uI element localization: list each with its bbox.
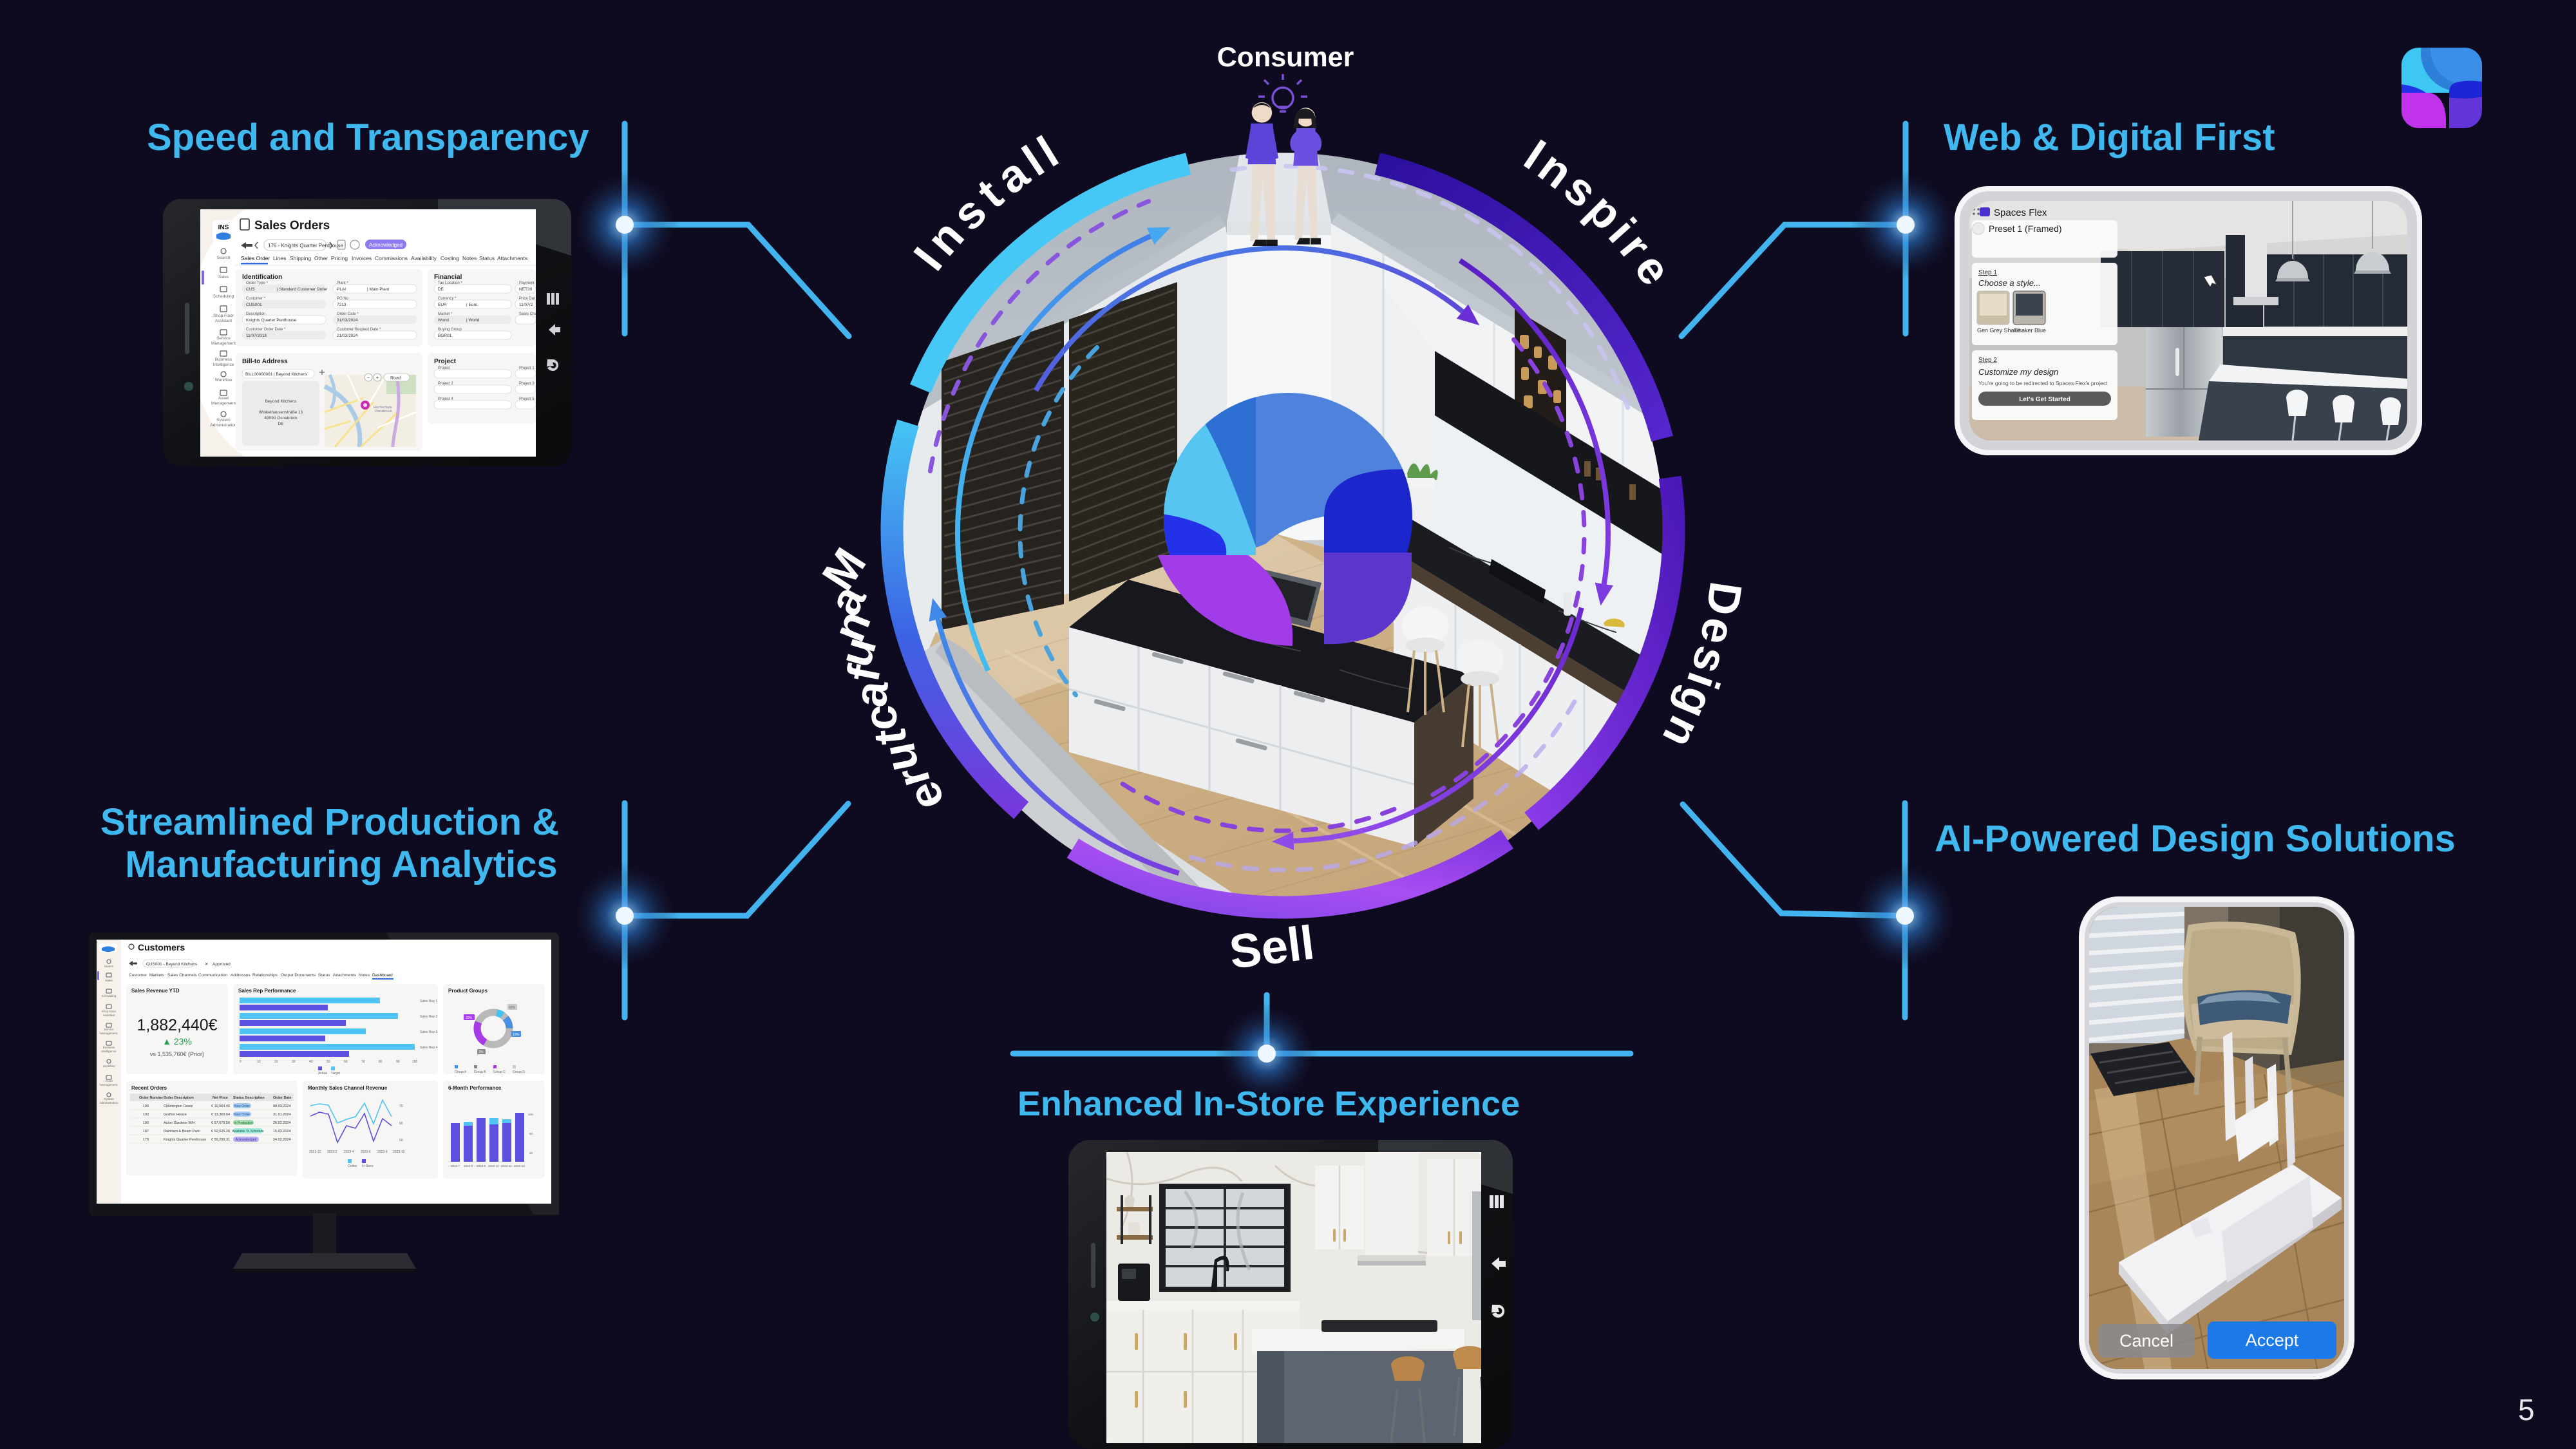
svg-text:Web & Digital First: Web & Digital First (1944, 117, 2275, 158)
svg-text:CUS001: CUS001 (246, 303, 262, 307)
svg-text:System: System (104, 1097, 113, 1101)
svg-text:€ 10,564.46: € 10,564.46 (211, 1104, 230, 1108)
svg-text:INS: INS (218, 224, 229, 231)
svg-text:Other: Other (314, 255, 328, 261)
svg-text:Sales Orders: Sales Orders (254, 219, 330, 232)
svg-text:Shop Floor: Shop Floor (102, 1010, 117, 1013)
svg-text:Plant *: Plant * (337, 281, 348, 285)
svg-text:Assistant: Assistant (103, 1014, 115, 1017)
svg-text:In-Store: In-Store (362, 1164, 374, 1168)
svg-text:Financial: Financial (434, 274, 462, 281)
svg-text:21/03/2024: 21/03/2024 (337, 334, 358, 338)
svg-text:Scheduling: Scheduling (102, 994, 117, 998)
svg-text:Order Date *: Order Date * (337, 312, 359, 316)
svg-text:Recent Orders: Recent Orders (131, 1085, 167, 1091)
svg-text:Relationships: Relationships (252, 973, 278, 978)
svg-text:Sales Cha: Sales Cha (519, 312, 537, 316)
svg-text:Enhanced In-Store Experience: Enhanced In-Store Experience (1018, 1084, 1520, 1123)
svg-text:Manufacturing Analytics: Manufacturing Analytics (125, 844, 557, 885)
svg-text:Customer *: Customer * (246, 297, 266, 301)
svg-text:Knights Quarter Penthouse: Knights Quarter Penthouse (164, 1138, 206, 1142)
svg-text:Administration: Administration (99, 1101, 118, 1104)
svg-text:c: c (856, 705, 907, 730)
svg-text:Shipping: Shipping (290, 255, 311, 261)
svg-text:70: 70 (399, 1104, 403, 1108)
svg-text:Shaker Blue: Shaker Blue (2014, 327, 2046, 334)
svg-text:| Main Plant: | Main Plant (367, 287, 389, 292)
svg-text:Shop Floor: Shop Floor (213, 314, 234, 318)
svg-text:Search: Search (104, 965, 114, 968)
svg-text:Consumer: Consumer (1217, 42, 1354, 73)
svg-text:31.01.2024: 31.01.2024 (273, 1113, 291, 1117)
svg-text:Cancel: Cancel (2119, 1331, 2173, 1350)
svg-text:Acknowledged: Acknowledged (236, 1138, 257, 1142)
svg-text:Sales: Sales (105, 979, 113, 982)
svg-text:Management: Management (211, 341, 236, 346)
svg-text:Order Date: Order Date (273, 1096, 291, 1100)
svg-text:Assistant: Assistant (215, 319, 232, 323)
svg-text:Available To Schedule: Available To Schedule (232, 1130, 263, 1133)
svg-text:BILL00000001: BILL00000001 (245, 372, 273, 377)
svg-text:€ 52,525.26: € 52,525.26 (211, 1130, 230, 1133)
svg-text:Dashboard: Dashboard (372, 973, 393, 978)
svg-text:World: World (438, 318, 449, 323)
svg-text:Addresses: Addresses (231, 973, 251, 978)
svg-text:2023-4: 2023-4 (344, 1150, 354, 1154)
svg-text:50: 50 (327, 1060, 330, 1064)
svg-text:Status Description: Status Description (233, 1096, 265, 1100)
svg-text:Group C: Group C (493, 1070, 506, 1074)
svg-text:Sales Channels: Sales Channels (167, 973, 197, 978)
svg-text:DE: DE (438, 287, 444, 292)
svg-text:Project 4: Project 4 (438, 397, 453, 401)
svg-text:Step 2: Step 2 (1978, 357, 1997, 364)
svg-text:€ 13,369.64: € 13,369.64 (211, 1113, 230, 1117)
svg-text:Scheduling: Scheduling (213, 294, 234, 299)
svg-text:2023-8: 2023-8 (377, 1150, 388, 1154)
svg-text:60: 60 (529, 1132, 533, 1135)
svg-text:Business: Business (215, 357, 232, 362)
svg-text:Acknowledged: Acknowledged (369, 242, 402, 248)
svg-text:BGR01: BGR01 (438, 334, 452, 338)
svg-text:5: 5 (2518, 1393, 2535, 1426)
svg-text:EUR: EUR (438, 303, 447, 307)
svg-text:Project: Project (434, 358, 457, 365)
svg-text:Preset 1 (Framed): Preset 1 (Framed) (1989, 223, 2062, 234)
svg-text:60: 60 (399, 1122, 403, 1126)
svg-text:187: 187 (143, 1130, 149, 1133)
svg-text:Workflow: Workflow (215, 378, 232, 383)
svg-text:30: 30 (292, 1060, 296, 1064)
svg-text:Sales: Sales (218, 275, 229, 279)
svg-text:Pricing: Pricing (331, 255, 348, 261)
svg-text:6-Month Performance: 6-Month Performance (448, 1085, 502, 1091)
svg-text:50: 50 (399, 1139, 403, 1142)
svg-text:Output Documents: Output Documents (281, 973, 316, 978)
svg-text:Management: Management (100, 1083, 118, 1086)
svg-text:Group A: Group A (455, 1070, 467, 1074)
svg-text:90: 90 (396, 1060, 400, 1064)
svg-text:New Order: New Order (234, 1113, 251, 1117)
svg-text:1,882,440€: 1,882,440€ (137, 1016, 217, 1034)
svg-text:Grafton House: Grafton House (164, 1113, 187, 1117)
svg-text:190: 190 (143, 1121, 149, 1125)
svg-text:Service: Service (104, 1028, 114, 1031)
svg-text:Approved: Approved (213, 962, 231, 967)
svg-text:CUS: CUS (246, 287, 255, 292)
svg-text:26.02.2024: 26.02.2024 (273, 1121, 291, 1125)
svg-text:Online: Online (348, 1164, 357, 1168)
svg-text:Administration: Administration (210, 423, 237, 428)
svg-text:vs 1,535,760€ (Prior): vs 1,535,760€ (Prior) (150, 1051, 204, 1057)
svg-text:Sales Rep 2: Sales Rep 2 (420, 1015, 437, 1019)
svg-text:2023-12: 2023-12 (514, 1164, 525, 1168)
svg-text:Customers: Customers (138, 942, 185, 952)
svg-text:System: System (216, 418, 231, 422)
svg-text:€ 59,299.31: € 59,299.31 (211, 1138, 230, 1142)
svg-text:2023-7: 2023-7 (451, 1164, 460, 1168)
svg-text:Product Groups: Product Groups (448, 988, 488, 994)
svg-text:Rainham & Beam Park: Rainham & Beam Park (164, 1130, 200, 1133)
svg-text:PLAI: PLAI (337, 287, 346, 292)
svg-text:3%: 3% (478, 1050, 484, 1054)
svg-text:Attachments: Attachments (497, 255, 527, 261)
svg-text:10%: 10% (513, 1033, 520, 1037)
svg-text:7213: 7213 (337, 303, 346, 307)
svg-text:Notes: Notes (359, 973, 370, 978)
svg-text:Communication: Communication (198, 973, 228, 978)
svg-text:Choose a style...: Choose a style... (1978, 278, 2041, 288)
svg-text:Customer: Customer (129, 973, 147, 978)
svg-text:2023-9: 2023-9 (477, 1164, 486, 1168)
svg-text:Gen Grey Shake: Gen Grey Shake (1977, 327, 2020, 334)
svg-text:Streamlined Production &: Streamlined Production & (100, 801, 559, 843)
svg-text:40: 40 (309, 1060, 313, 1064)
svg-text:Lines: Lines (273, 255, 286, 261)
svg-text:Order Number: Order Number (139, 1096, 164, 1100)
svg-text:+: + (376, 375, 379, 381)
svg-text:Payment: Payment (519, 281, 535, 285)
svg-text:192: 192 (143, 1113, 149, 1117)
svg-text:70: 70 (361, 1060, 365, 1064)
svg-text:2023-11: 2023-11 (501, 1164, 512, 1168)
svg-text:Monthly Sales Channel Revenue: Monthly Sales Channel Revenue (308, 1085, 388, 1091)
svg-text:Description: Description (246, 312, 265, 316)
svg-text:Customize my design: Customize my design (1978, 367, 2058, 377)
svg-text:−: − (367, 375, 370, 381)
svg-text:You're going to be redirected: You're going to be redirected to Spaces … (1978, 380, 2108, 386)
svg-text:2022-12: 2022-12 (309, 1150, 321, 1154)
svg-text:100: 100 (528, 1113, 533, 1116)
svg-text:Knights Quarter Penthouse: Knights Quarter Penthouse (246, 318, 297, 323)
svg-text:Markets: Markets (149, 973, 165, 978)
svg-text:PO No: PO No (337, 297, 349, 301)
svg-text:| Standard Customer Order: | Standard Customer Order (277, 287, 328, 292)
svg-text:Step 1: Step 1 (1978, 269, 1997, 276)
svg-text:178: 178 (143, 1138, 149, 1142)
svg-text:Costing: Costing (440, 255, 459, 261)
svg-text:Target: Target (331, 1072, 341, 1075)
svg-text:AI-Powered Design Solutions: AI-Powered Design Solutions (1935, 818, 2456, 860)
svg-text:Group B: Group B (474, 1070, 486, 1074)
svg-text:New Order: New Order (234, 1104, 251, 1108)
svg-text:31/03/2024: 31/03/2024 (337, 318, 358, 323)
svg-text:Notes: Notes (462, 255, 477, 261)
svg-text:196: 196 (143, 1104, 149, 1108)
svg-text:2023-2: 2023-2 (327, 1150, 337, 1154)
svg-text:In Production: In Production (234, 1121, 253, 1125)
svg-text:Net Price: Net Price (213, 1096, 228, 1100)
svg-text:11/07/2: 11/07/2 (519, 303, 533, 307)
svg-text:✕: ✕ (205, 962, 208, 967)
svg-text:Currency *: Currency * (438, 297, 457, 301)
svg-text:2023-10: 2023-10 (393, 1150, 405, 1154)
svg-text:NET30: NET30 (519, 287, 533, 292)
svg-text:Customer Order Date *: Customer Order Date * (246, 328, 286, 332)
svg-text:| World: | World (466, 318, 480, 323)
svg-text:Sales Rep 4: Sales Rep 4 (420, 1046, 437, 1050)
svg-text:DE: DE (278, 422, 284, 426)
svg-text:Actual: Actual (318, 1072, 327, 1075)
svg-text:Spaces Flex: Spaces Flex (1994, 207, 2047, 218)
svg-text:Speed and Transparency: Speed and Transparency (147, 117, 589, 158)
svg-text:Search: Search (217, 256, 231, 260)
svg-text:20: 20 (529, 1151, 533, 1155)
svg-text:€ 57,679.56: € 57,679.56 (211, 1121, 230, 1125)
svg-text:Accept: Accept (2246, 1331, 2299, 1350)
svg-text:Identification: Identification (242, 274, 282, 281)
svg-text:Service: Service (216, 336, 231, 341)
svg-text:Buying Group: Buying Group (438, 328, 462, 332)
svg-text:Management: Management (211, 401, 236, 406)
svg-text:Sales Revenue YTD: Sales Revenue YTD (131, 988, 180, 994)
svg-text:Invoices: Invoices (352, 255, 372, 261)
svg-text:Bill-to Address: Bill-to Address (242, 358, 288, 365)
svg-text:Tax Location *: Tax Location * (438, 281, 462, 285)
svg-text:Sell: Sell (1227, 915, 1318, 978)
svg-text:Project 5: Project 5 (519, 397, 535, 401)
svg-text:100: 100 (412, 1060, 418, 1064)
svg-text:Asset: Asset (218, 396, 229, 401)
svg-text:Project 1: Project 1 (519, 366, 535, 370)
svg-text:2023-10: 2023-10 (488, 1164, 499, 1168)
svg-text:2023-8: 2023-8 (464, 1164, 473, 1168)
svg-text:Group D: Group D (513, 1070, 525, 1074)
svg-text:Asset: Asset (105, 1079, 113, 1083)
svg-text:11/07/2018: 11/07/2018 (246, 334, 267, 338)
svg-text:Commissions: Commissions (375, 255, 408, 261)
svg-text:Order Type *: Order Type * (246, 281, 269, 285)
svg-text:Availability: Availability (411, 255, 437, 261)
svg-text:80: 80 (379, 1060, 383, 1064)
svg-text:Sales Rep 3: Sales Rep 3 (420, 1030, 437, 1034)
svg-text:Winkelhausenstraße 13: Winkelhausenstraße 13 (259, 410, 303, 415)
svg-text:▲ 23%: ▲ 23% (162, 1036, 192, 1046)
svg-text:15.03.2024: 15.03.2024 (273, 1130, 291, 1133)
svg-text:Management: Management (100, 1032, 118, 1035)
svg-text:Osnabrück: Osnabrück (375, 410, 392, 413)
svg-text:Intelligence: Intelligence (101, 1050, 117, 1053)
svg-text:Road: Road (390, 376, 401, 381)
svg-text:Acton Gardens W/H: Acton Gardens W/H (164, 1121, 195, 1125)
svg-text:Sales Rep 1: Sales Rep 1 (420, 999, 437, 1003)
svg-text:Project 3: Project 3 (519, 382, 535, 386)
svg-text:24.02.2024: 24.02.2024 (273, 1138, 291, 1142)
svg-text:Customer Request Date *: Customer Request Date * (337, 328, 381, 332)
svg-text:20: 20 (274, 1060, 278, 1064)
svg-text:Sales Rep Performance: Sales Rep Performance (238, 988, 296, 994)
svg-text:0: 0 (240, 1060, 241, 1064)
svg-text:Market *: Market * (438, 312, 453, 316)
svg-text:Let's Get Started: Let's Get Started (2019, 396, 2070, 403)
svg-text:CUS001 - Beyond Kitchens: CUS001 - Beyond Kitchens (146, 962, 198, 967)
svg-text:a: a (845, 679, 898, 709)
svg-text:2023-6: 2023-6 (361, 1150, 371, 1154)
svg-text:Project: Project (438, 366, 450, 370)
svg-text:Business: Business (103, 1046, 115, 1049)
svg-text:Price Dat: Price Dat (519, 297, 535, 301)
svg-text:Attachments: Attachments (333, 973, 357, 978)
svg-text:Status: Status (318, 973, 330, 978)
svg-text:20%: 20% (466, 1016, 473, 1020)
svg-text:08.03.2024: 08.03.2024 (273, 1104, 291, 1108)
svg-text:Project 2: Project 2 (438, 382, 453, 386)
svg-text:Intelligence: Intelligence (213, 363, 234, 367)
svg-text:Beyond Kitchens: Beyond Kitchens (265, 399, 298, 404)
svg-text:55%: 55% (509, 1006, 516, 1010)
svg-text:Sales Order: Sales Order (241, 255, 270, 261)
svg-text:Chilmington Green: Chilmington Green (164, 1104, 193, 1108)
svg-text:| Beyond Kitchens: | Beyond Kitchens (274, 372, 308, 377)
svg-text:| Euro: | Euro (466, 303, 478, 307)
svg-text:60: 60 (344, 1060, 348, 1064)
svg-text:10: 10 (257, 1060, 261, 1064)
svg-text:Workflow: Workflow (103, 1065, 115, 1068)
svg-text:49090 Osnabrück: 49090 Osnabrück (264, 416, 298, 421)
svg-text:Status: Status (479, 255, 495, 261)
svg-text:Order Description: Order Description (164, 1096, 194, 1100)
